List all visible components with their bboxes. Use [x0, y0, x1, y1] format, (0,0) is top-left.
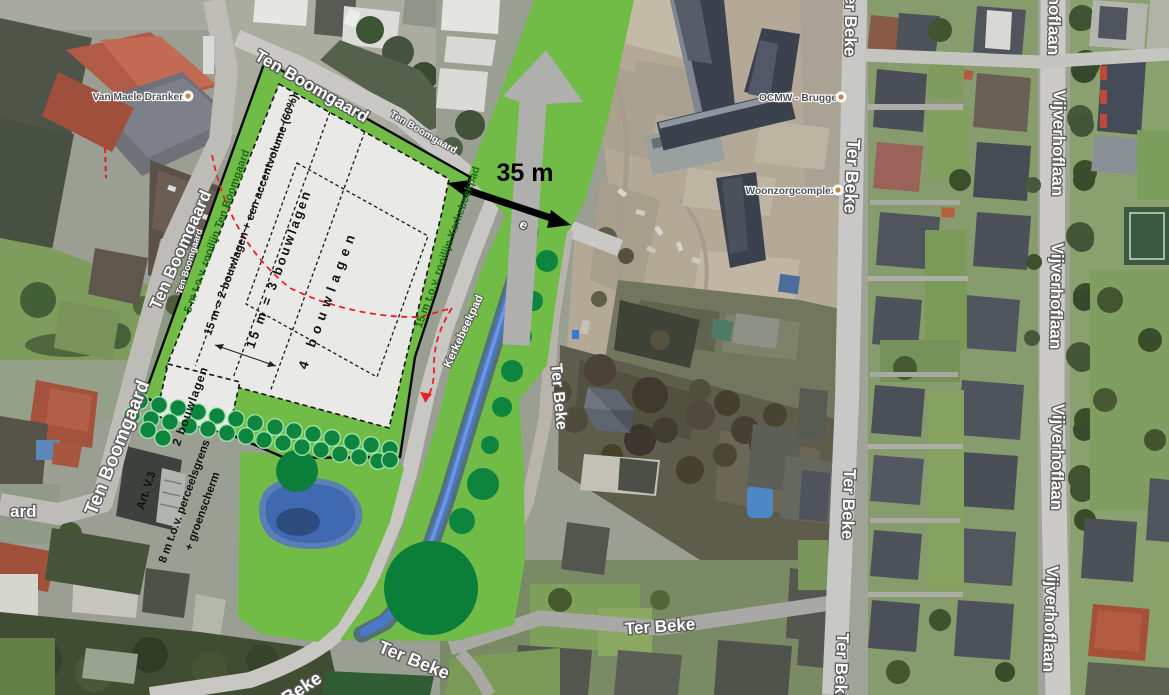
svg-text:Woonzorgcomplex: Woonzorgcomplex: [746, 186, 837, 197]
svg-text:Vijverhoflaan: Vijverhoflaan: [1039, 565, 1062, 672]
svg-text:OCMW - Brugge: OCMW - Brugge: [759, 93, 837, 104]
svg-text:Vijverhoflaan: Vijverhoflaan: [1048, 90, 1069, 197]
svg-text:ard: ard: [10, 502, 36, 521]
svg-text:Ter Beke: Ter Beke: [838, 469, 859, 540]
svg-text:Ter Beke: Ter Beke: [840, 0, 860, 57]
svg-text:Ter Beke: Ter Beke: [840, 138, 864, 214]
svg-text:Vijverhoflaan: Vijverhoflaan: [1046, 243, 1067, 350]
svg-text:Vijverhoflaan: Vijverhoflaan: [1044, 0, 1065, 55]
svg-text:35 m: 35 m: [497, 159, 554, 187]
svg-text:Ter Beke: Ter Beke: [831, 633, 852, 695]
svg-text:Vijverhoflaan: Vijverhoflaan: [1047, 404, 1068, 511]
svg-text:Van Maele Dranken: Van Maele Dranken: [93, 92, 186, 103]
